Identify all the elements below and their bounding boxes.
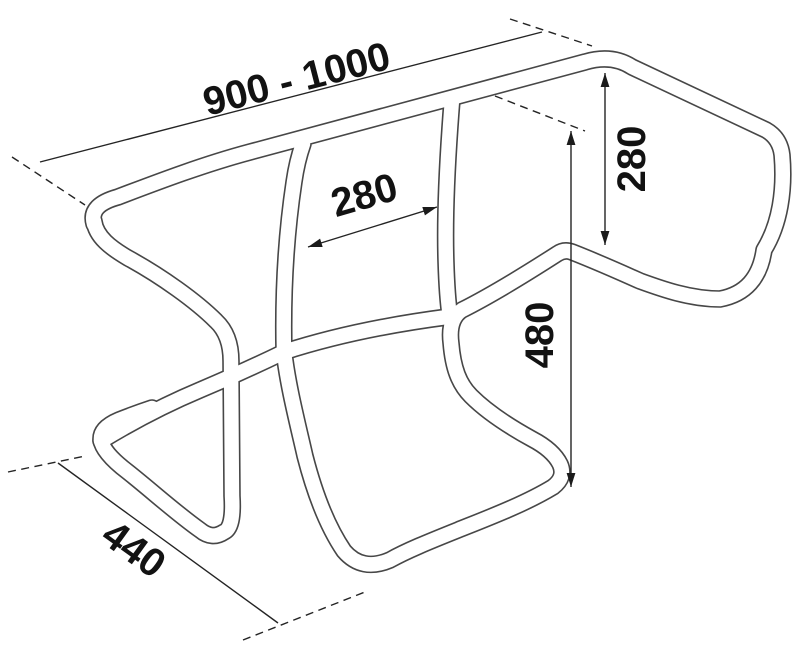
dim-label-drop-height: 480: [518, 302, 562, 369]
frame-middle-rail-fill: [101, 317, 447, 441]
frame-middle-rail-outline: [101, 317, 447, 441]
frame-strut-fill: [446, 100, 452, 317]
dim-label-side-panel-height: 280: [610, 126, 654, 193]
drawing-canvas: 900 - 1000 280 280 480 440: [0, 0, 800, 654]
dim-label-depth: 440: [94, 512, 174, 587]
extension-line-top-left: [12, 157, 85, 205]
extension-line-bottom-center: [243, 592, 365, 640]
extension-line-right-reference: [495, 96, 585, 131]
frame-fill-layer: [93, 59, 783, 564]
dim-label-inner-section-width: 280: [326, 165, 402, 226]
dim-line-depth: [58, 463, 278, 623]
dimension-diagram: 900 - 1000 280 280 480 440: [0, 0, 800, 654]
extension-line-top-right: [510, 19, 592, 46]
extension-line-bottom-left: [8, 456, 85, 472]
dim-label-overall-width: 900 - 1000: [199, 34, 395, 124]
